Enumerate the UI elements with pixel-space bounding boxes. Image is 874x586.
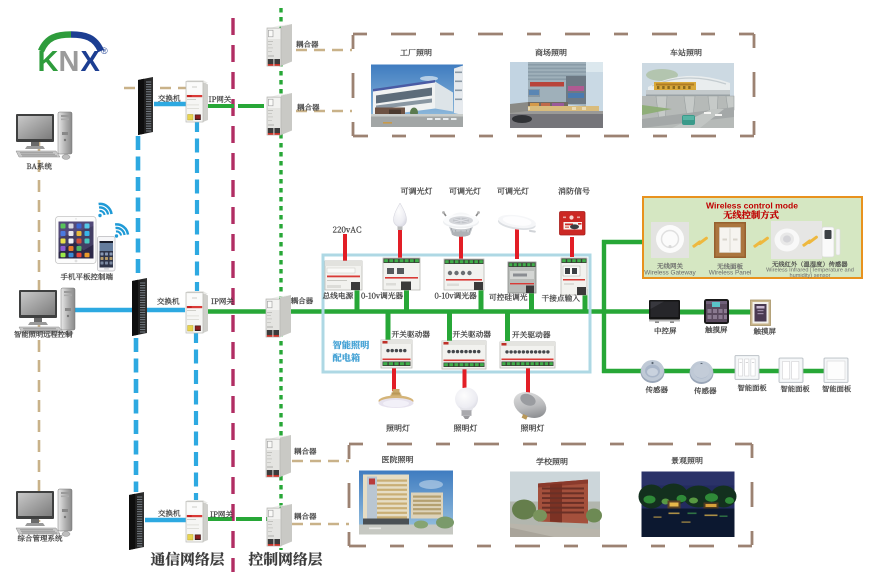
svg-text:humidity) sensor: humidity) sensor <box>789 273 830 279</box>
svg-text:N: N <box>59 46 80 78</box>
svg-text:Wireless control mode: Wireless control mode <box>706 201 798 211</box>
svg-text:®: ® <box>101 46 108 56</box>
svg-text:Wireless Panel: Wireless Panel <box>709 270 752 277</box>
svg-text:K: K <box>38 46 59 78</box>
svg-text:X: X <box>81 46 101 78</box>
svg-text:Wireless Gateway: Wireless Gateway <box>644 270 696 277</box>
